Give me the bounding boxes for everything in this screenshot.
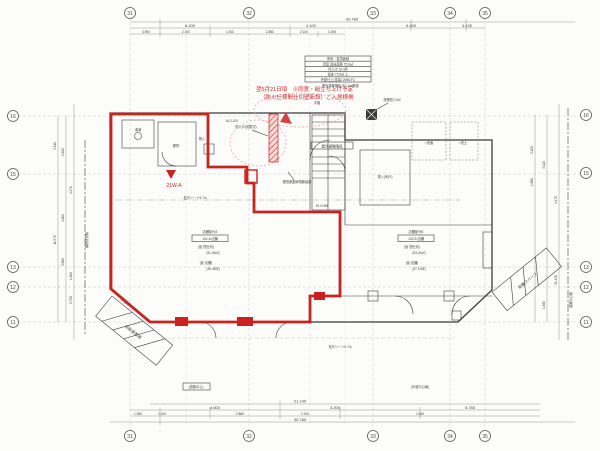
dim-text: 4.600 bbox=[61, 214, 65, 222]
dim-text: 8.100 bbox=[185, 23, 196, 28]
grid-bubble-label: 12 bbox=[583, 285, 589, 291]
stair-label: 屋外避難階段 bbox=[322, 143, 343, 148]
grid-bubble-left: 16 15 13 12 11 bbox=[8, 111, 19, 328]
grid-lines bbox=[18, 18, 582, 430]
annotation-clouds bbox=[230, 93, 346, 166]
room-a-label: (仮 店舗) bbox=[200, 260, 213, 265]
label-fire-door: 防火戸(常閉式) bbox=[235, 124, 256, 129]
sheet-label: 長尺シート5.7m bbox=[328, 344, 351, 349]
info-row: 貸室 延床面積 75.6㎡ bbox=[323, 61, 354, 66]
room-b-label: 102-B 店舗 bbox=[408, 236, 425, 241]
dim-text: 6.400 bbox=[406, 23, 417, 28]
dim-text: 5.785 bbox=[465, 405, 476, 410]
level-label: AL2.100 bbox=[226, 119, 238, 123]
dim-text: 2.100 bbox=[300, 30, 308, 34]
dim-text: 2.620 bbox=[61, 148, 65, 156]
building-walls bbox=[110, 109, 492, 338]
info-table: 専有・賃貸面積 貸室 延床面積 75.6㎡ 坪上げ 23.4坪 延床 73.6㎡… bbox=[305, 56, 371, 82]
grid-bubbles: 31 32 33 34 35 31 32 33 34 35 16 bbox=[8, 8, 592, 442]
smoke-window-label: 排煙窓2.0㎡ bbox=[383, 97, 401, 102]
dim-text: 4.100 bbox=[306, 23, 317, 28]
info-row: 外壁仕上(塗装) 2098-FC bbox=[321, 77, 356, 82]
dimension-lines bbox=[58, 19, 575, 425]
handrail-label: 手摺 bbox=[314, 100, 320, 105]
dim-text: 1.060 bbox=[134, 412, 142, 416]
dim-text: 1.540 bbox=[416, 412, 424, 416]
room-a-label: (仮 間仕切) bbox=[198, 244, 214, 249]
dim-text: 3.110 bbox=[542, 161, 546, 169]
room-b-label: 店舗部分B bbox=[409, 229, 424, 234]
bike-area-label: 自転車置場 bbox=[124, 323, 143, 340]
dim-text: 21.430 bbox=[554, 275, 558, 285]
fixture-label: □洗土 bbox=[459, 140, 468, 145]
dim-text: 30.780 bbox=[346, 17, 359, 22]
floor-plan-svg: 30.780 8.100 4.100 6.400 4.130 3.900 2.1… bbox=[0, 0, 600, 451]
dim-text: 1.100 bbox=[158, 412, 166, 416]
grid-bubble-label: 35 bbox=[482, 11, 488, 17]
fixture-label: □洗面 bbox=[425, 140, 433, 145]
room-label: 湯沸 bbox=[135, 127, 142, 132]
grid-bubble-label: 31 bbox=[127, 434, 133, 440]
grid-bubble-label: 12 bbox=[10, 285, 16, 291]
grid-bubble-label: 15 bbox=[583, 171, 589, 177]
label-fire-door: 煙感連動扉閉鎖装置 bbox=[283, 179, 312, 184]
grid-bubble-label: 34 bbox=[447, 11, 453, 17]
dim-text: 1.460 bbox=[542, 301, 546, 309]
shelf-label: 物入(吊戸) bbox=[378, 174, 393, 179]
dim-text: 1.460 bbox=[69, 272, 73, 280]
red-wall-pier bbox=[175, 317, 188, 326]
dim-text: 2.850 bbox=[266, 30, 274, 34]
grid-bubble-label: 13 bbox=[583, 265, 589, 271]
escape-note: 屋外避難階段 巾1.2m確保 bbox=[322, 83, 359, 88]
dim-text: 21.140 bbox=[294, 399, 307, 404]
grid-bubble-top: 31 32 33 34 35 bbox=[125, 8, 491, 19]
dim-text: 1.005 bbox=[328, 30, 336, 34]
info-row: 延床 73.6㎡ 上 bbox=[328, 72, 350, 77]
level-label: EL2.098 bbox=[316, 204, 328, 208]
grid-bubble-right: 16 15 13 12 11 bbox=[581, 110, 592, 328]
red-arrow bbox=[166, 170, 176, 179]
dim-text: 1.880 bbox=[530, 178, 534, 186]
dim-text: 11.570 bbox=[53, 235, 57, 245]
dim-text: 2.860 bbox=[236, 412, 244, 416]
grid-bubble-label: 32 bbox=[246, 11, 252, 17]
dim-text: 4.470 bbox=[554, 196, 558, 204]
room-a-label: (91.45㎡) bbox=[206, 250, 219, 255]
dim-text: 30.780 bbox=[294, 417, 307, 422]
room-b-label: (仮 店舗) bbox=[406, 260, 419, 265]
dim-text: 4.470 bbox=[69, 186, 73, 194]
grid-bubble-label: 15 bbox=[10, 172, 16, 178]
grid-bubble-label: 16 bbox=[583, 113, 589, 119]
red-arrow bbox=[280, 112, 292, 124]
dimension-texts: 30.780 8.100 4.100 6.400 4.130 3.900 2.1… bbox=[53, 17, 558, 422]
red-wall-pier bbox=[237, 317, 253, 326]
red-note-line2: （防火仕様間仕切壁新設）ご入居様側 bbox=[260, 93, 354, 101]
grid-bubble-label: 32 bbox=[246, 434, 252, 440]
room-b-label: (37.10坪) bbox=[412, 266, 425, 271]
info-row: 専有・賃貸面積 bbox=[327, 56, 350, 61]
room-a-label: 101-A 店舗 bbox=[202, 236, 218, 241]
room-a-label: (36.45坪) bbox=[206, 266, 219, 271]
grid-bubble-label: 11 bbox=[10, 320, 15, 326]
grid-bubble-bottom: 31 32 33 34 35 bbox=[125, 431, 491, 442]
room-b-label: (仮 間仕切) bbox=[404, 244, 420, 249]
room-label: 物入 bbox=[199, 136, 206, 141]
grid-bubble-label: 33 bbox=[370, 11, 376, 17]
sheet-label: 長尺シート5.7m bbox=[183, 195, 206, 200]
fire-wall-hatch bbox=[269, 114, 278, 162]
info-row: 坪上げ 23.4坪 bbox=[328, 67, 349, 72]
grid-bubble-label: 16 bbox=[10, 114, 16, 120]
grid-bubble-label: 31 bbox=[127, 11, 133, 17]
dim-text: 4.130 bbox=[462, 23, 473, 28]
bike-area-right: 駐輪スペース bbox=[492, 248, 562, 311]
unit-tag: 21W-A bbox=[166, 183, 182, 189]
grid-bubble-label: 34 bbox=[447, 434, 453, 440]
dim-text: 2.100 bbox=[182, 30, 190, 34]
room-a-label: 店舗部分A bbox=[203, 229, 219, 234]
dim-text: 3.110 bbox=[53, 142, 57, 150]
road-center-label: (道路中心) bbox=[189, 384, 204, 389]
grid-bubble-label: 33 bbox=[370, 434, 376, 440]
dim-text: 2.100 bbox=[530, 146, 534, 154]
boundary-label: 隣地境界線 bbox=[84, 231, 89, 248]
room-label: 便所 bbox=[173, 143, 180, 148]
dim-text: 1.910 bbox=[301, 412, 309, 416]
grid-bubble-label: 35 bbox=[482, 434, 488, 440]
grid-bubble-label: 11 bbox=[583, 320, 588, 326]
red-wall-pier bbox=[314, 292, 325, 300]
dim-text: 3.200 bbox=[330, 405, 341, 410]
dim-text: 1.910 bbox=[226, 30, 234, 34]
grid-bubble-label: 13 bbox=[10, 265, 16, 271]
room-b-label: (93.40㎡) bbox=[412, 250, 425, 255]
walk-center-label: (歩道中心線) bbox=[411, 384, 429, 389]
drawing-sheet: 30.780 8.100 4.100 6.400 4.130 3.900 2.1… bbox=[0, 0, 600, 451]
plan-labels: 便所 湯沸 物入 防火戸(常閉式) 煙感連動扉閉鎖装置 屋外避難階段 手摺 排煙… bbox=[84, 97, 573, 390]
dim-text: 3.900 bbox=[142, 30, 150, 34]
dim-text: 2.750 bbox=[69, 296, 73, 304]
dim-text: 4.600 bbox=[210, 405, 221, 410]
road-centerline-label: 道路中心線 bbox=[568, 291, 573, 308]
dim-text: 3.860 bbox=[61, 258, 65, 266]
